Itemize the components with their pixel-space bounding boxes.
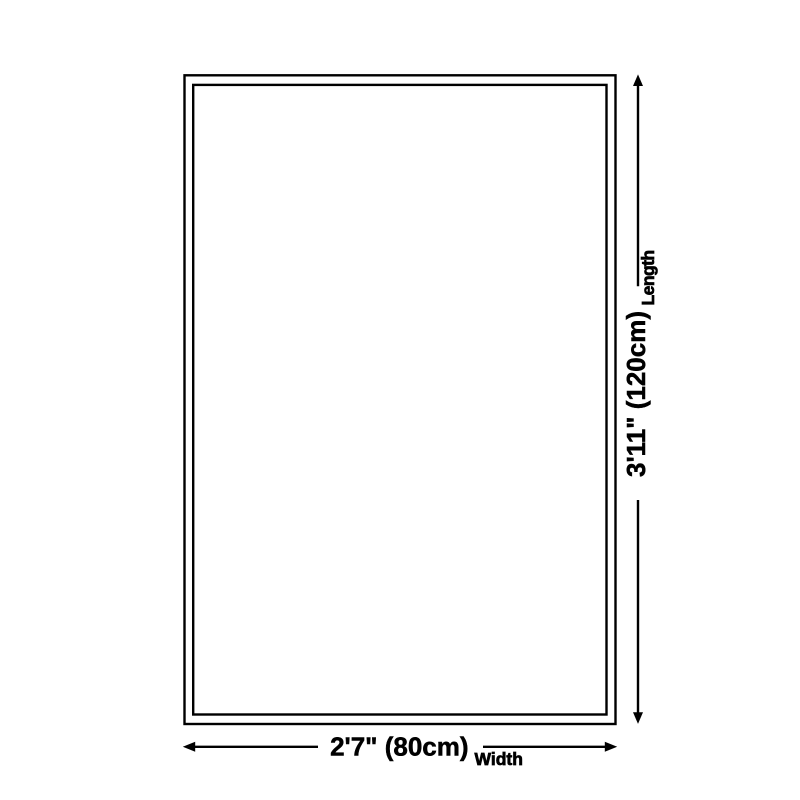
svg-text:Length: Length — [638, 250, 658, 305]
svg-text:3'11" (120cm): 3'11" (120cm) — [621, 311, 651, 477]
svg-text:2'7" (80cm): 2'7" (80cm) — [330, 732, 468, 762]
svg-text:Width: Width — [475, 749, 523, 769]
